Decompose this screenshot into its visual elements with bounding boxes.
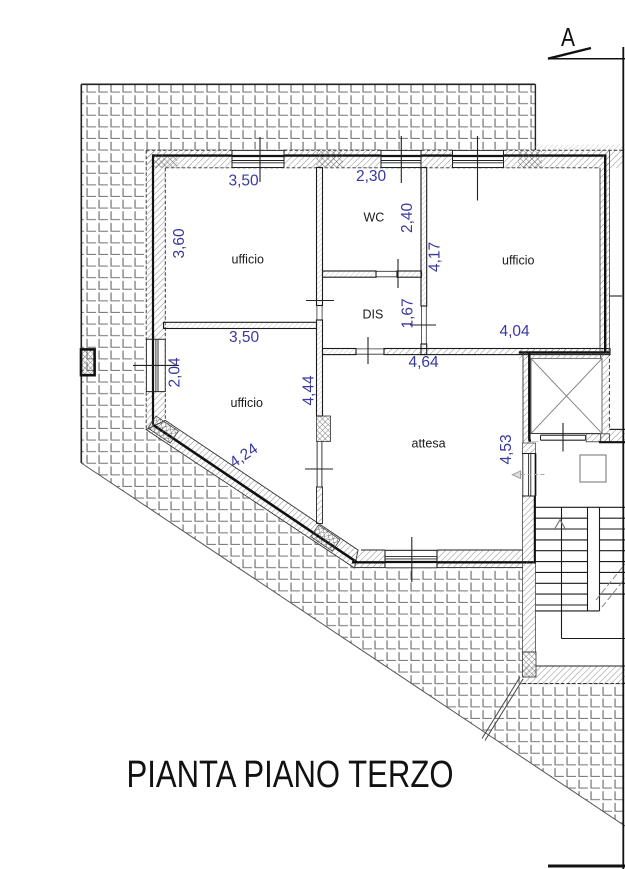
svg-text:3,60: 3,60 [171,228,188,259]
svg-text:4,17: 4,17 [427,242,444,272]
svg-text:2,40: 2,40 [399,202,416,233]
svg-text:A: A [561,22,576,52]
svg-text:3,50: 3,50 [229,173,260,190]
svg-text:PIANTA PIANO TERZO: PIANTA PIANO TERZO [127,754,454,796]
svg-text:4,04: 4,04 [500,323,531,340]
svg-text:4,53: 4,53 [498,434,515,464]
svg-text:1,67: 1,67 [400,298,417,328]
svg-text:ufficio: ufficio [502,254,534,268]
svg-text:attesa: attesa [412,437,446,451]
svg-text:4,44: 4,44 [301,375,318,406]
svg-text:2,04: 2,04 [167,357,184,388]
svg-text:ufficio: ufficio [232,253,264,267]
svg-text:4,64: 4,64 [409,354,440,371]
svg-text:3,50: 3,50 [229,329,260,346]
svg-text:DIS: DIS [363,308,384,322]
svg-text:ufficio: ufficio [231,396,263,410]
svg-text:2,30: 2,30 [356,168,387,185]
svg-text:WC: WC [364,211,385,225]
